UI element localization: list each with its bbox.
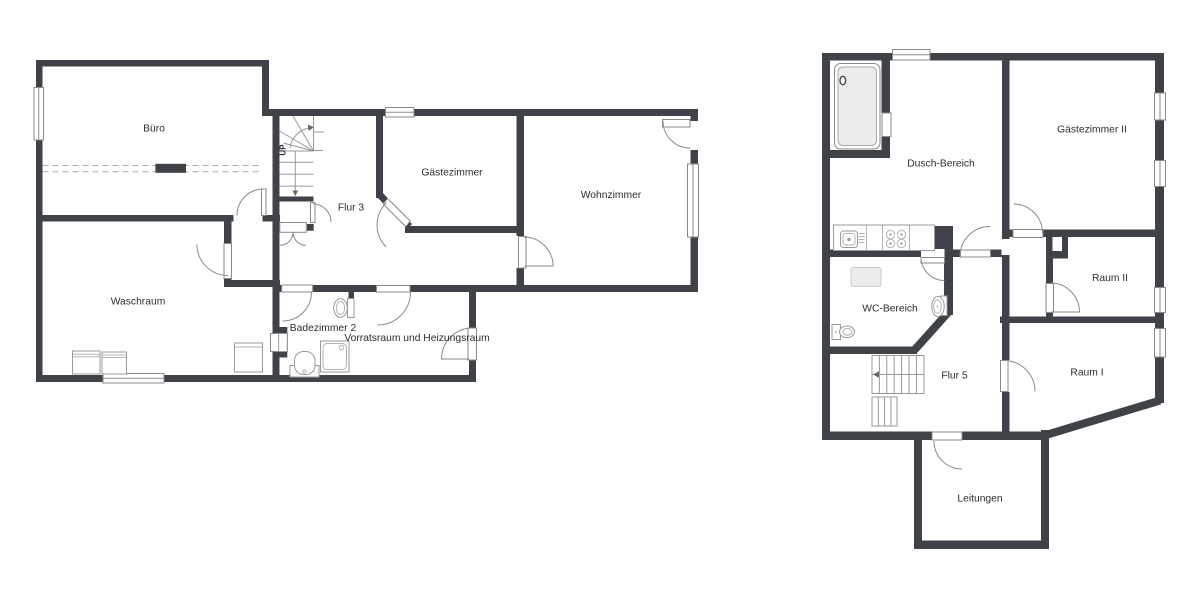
svg-text:Waschraum: Waschraum — [111, 297, 166, 308]
svg-text:Raum I: Raum I — [1070, 368, 1103, 379]
svg-text:Vorratsraum und Heizungsraum: Vorratsraum und Heizungsraum — [344, 333, 489, 344]
svg-text:Dusch-Bereich: Dusch-Bereich — [907, 159, 975, 170]
svg-text:Gästezimmer II: Gästezimmer II — [1057, 125, 1127, 136]
svg-text:Flur 5: Flur 5 — [941, 371, 968, 382]
svg-text:Gästezimmer: Gästezimmer — [421, 168, 483, 179]
svg-text:Büro: Büro — [143, 124, 165, 135]
svg-text:UP: UP — [279, 144, 288, 156]
svg-text:Wohnzimmer: Wohnzimmer — [581, 190, 642, 201]
svg-text:Raum II: Raum II — [1092, 273, 1128, 284]
svg-text:Leitungen: Leitungen — [957, 494, 1003, 505]
svg-text:WC-Bereich: WC-Bereich — [862, 304, 918, 315]
svg-text:Flur 3: Flur 3 — [338, 203, 365, 214]
